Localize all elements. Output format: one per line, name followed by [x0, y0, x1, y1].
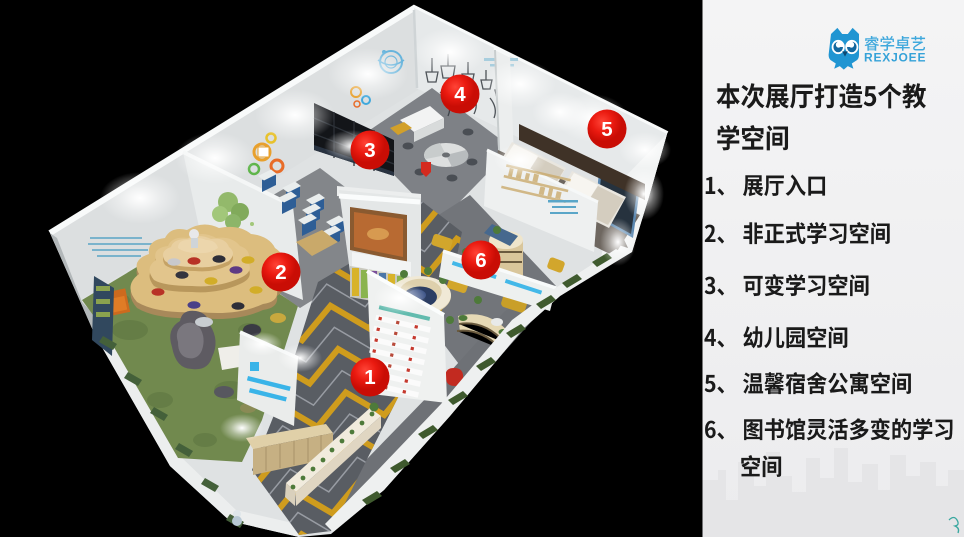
svg-text:4: 4	[454, 83, 466, 106]
svg-text:6: 6	[475, 249, 486, 272]
svg-text:2: 2	[275, 261, 286, 284]
svg-text:1: 1	[364, 366, 375, 389]
svg-text:3: 3	[364, 139, 375, 162]
svg-text:5: 5	[601, 118, 612, 141]
svg-text:REXJOEE: REXJOEE	[864, 51, 926, 65]
